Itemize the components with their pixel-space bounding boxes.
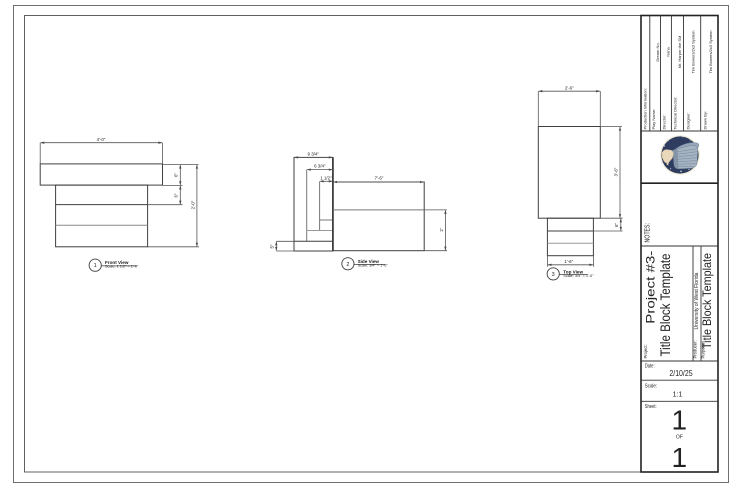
svg-text:Drawn By:: Drawn By: (703, 111, 708, 129)
svg-text:2': 2' (439, 228, 444, 231)
svg-text:1:1: 1:1 (673, 391, 683, 398)
svg-text:Play Name:: Play Name: (651, 109, 656, 130)
svg-text:6": 6" (174, 173, 179, 177)
svg-text:2: 2 (346, 262, 349, 268)
svg-text:Project #3-: Project #3- (643, 251, 657, 324)
svg-text:Scale:: Scale: (645, 383, 658, 389)
svg-text:Title Block Template: Title Block Template (657, 253, 673, 356)
svg-text:Sheet:: Sheet: (645, 404, 657, 410)
svg-text:7'-6": 7'-6" (375, 176, 384, 181)
svg-text:1: 1 (94, 263, 97, 269)
svg-text:Nana: Nana (666, 46, 671, 56)
svg-text:Scale: 3/4" = 1'-0": Scale: 3/4" = 1'-0" (358, 263, 389, 267)
svg-text:Mr. Harper the SM: Mr. Harper the SM (677, 36, 682, 69)
svg-text:Project:: Project: (643, 344, 648, 358)
svg-text:1: 1 (672, 404, 688, 435)
svg-text:Scale: 1 1/2" = 1'-0": Scale: 1 1/2" = 1'-0" (105, 265, 139, 269)
svg-text:1 1/2": 1 1/2" (320, 175, 332, 180)
svg-text:2'-0": 2'-0" (191, 200, 196, 209)
svg-text:OF: OF (676, 435, 683, 441)
svg-text:6 3/4": 6 3/4" (314, 164, 326, 169)
svg-text:Dream No.: Dream No. (655, 42, 660, 61)
svg-text:5": 5" (270, 244, 275, 248)
svg-text:Designer:: Designer: (686, 112, 691, 129)
svg-text:Tim Bowers/2x3 System: Tim Bowers/2x3 System (691, 30, 696, 74)
svg-text:Director:: Director: (662, 114, 667, 129)
svg-text:4'-0": 4'-0" (97, 137, 106, 142)
svg-text:1'-6": 1'-6" (564, 259, 573, 264)
svg-text:Title Block Template: Title Block Template (700, 253, 714, 349)
svg-text:University of West Florida: University of West Florida (694, 272, 700, 329)
svg-text:6": 6" (614, 223, 619, 227)
svg-text:9 3/4": 9 3/4" (308, 152, 320, 157)
svg-text:3: 3 (552, 272, 555, 278)
svg-text:Production Information:: Production Information: (643, 88, 648, 129)
svg-text:Date:: Date: (645, 363, 655, 369)
svg-text:2'-6": 2'-6" (565, 85, 574, 90)
svg-text:Scale: 3/4" = 1'-0": Scale: 3/4" = 1'-0" (563, 274, 594, 278)
svg-text:NOTES:: NOTES: (645, 223, 652, 243)
svg-text:6": 6" (174, 193, 179, 197)
svg-text:2/10/25: 2/10/25 (669, 368, 692, 378)
svg-text:Technical Director:: Technical Director: (673, 97, 678, 130)
svg-text:3'-6": 3'-6" (613, 167, 618, 176)
svg-text:Producer:: Producer: (692, 340, 697, 358)
svg-text:1: 1 (672, 442, 688, 473)
svg-text:Tim Bowers/2x3 System: Tim Bowers/2x3 System (708, 30, 713, 74)
